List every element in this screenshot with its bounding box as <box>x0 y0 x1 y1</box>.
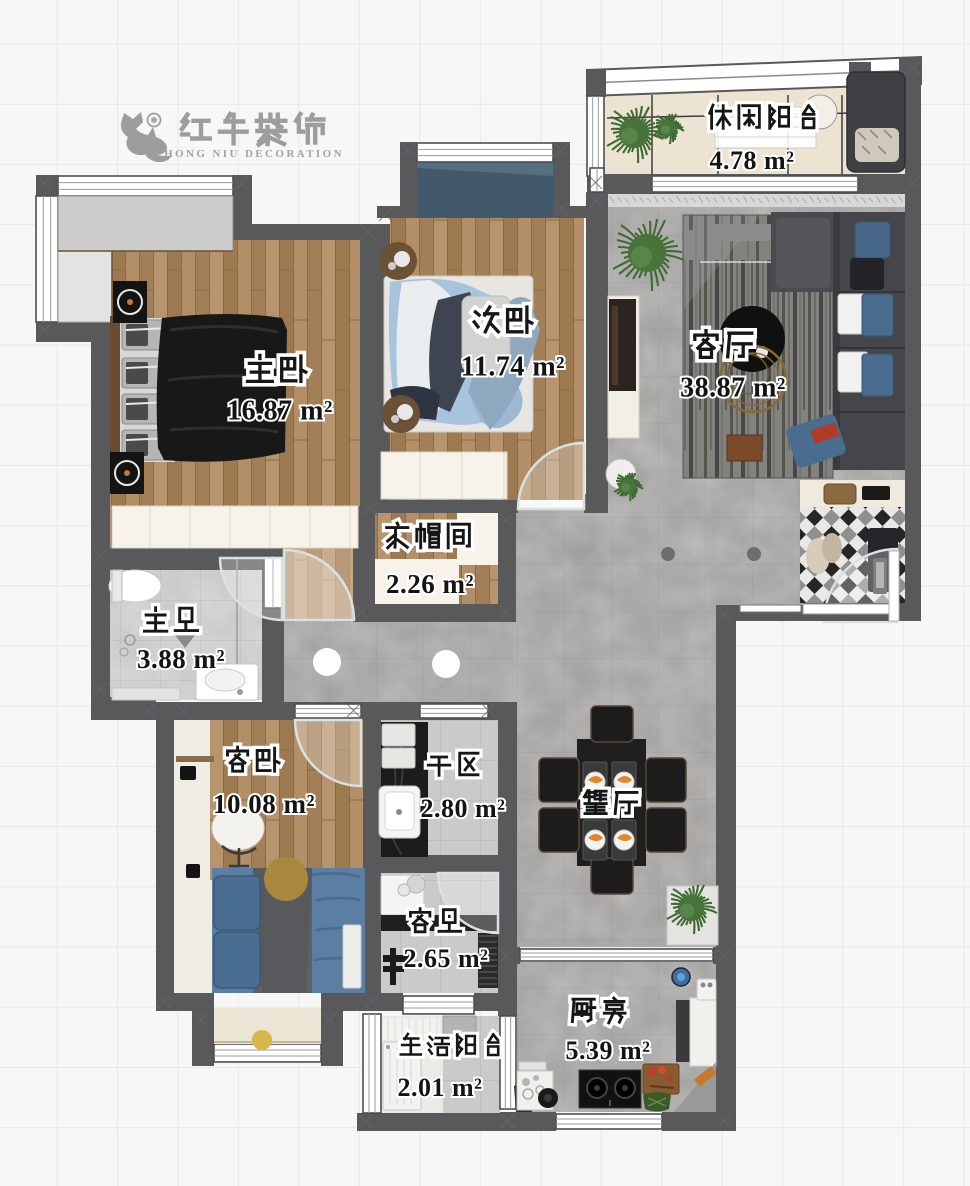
svg-text:2.01 m²: 2.01 m² <box>398 1073 483 1102</box>
svg-text:11.74 m²: 11.74 m² <box>461 351 565 382</box>
svg-text:5.39 m²: 5.39 m² <box>566 1036 651 1065</box>
svg-text:HONG NIU DECORATION: HONG NIU DECORATION <box>164 148 344 160</box>
svg-text:16.87 m²: 16.87 m² <box>227 395 333 426</box>
svg-text:2.65 m²: 2.65 m² <box>404 944 489 973</box>
svg-text:10.08 m²: 10.08 m² <box>213 789 315 819</box>
svg-text:3.88 m²: 3.88 m² <box>137 644 225 674</box>
svg-text:38.87 m²: 38.87 m² <box>680 372 786 403</box>
svg-text:4.78 m²: 4.78 m² <box>710 146 795 175</box>
svg-text:2.26 m²: 2.26 m² <box>386 569 474 599</box>
svg-text:2.80 m²: 2.80 m² <box>421 794 506 823</box>
